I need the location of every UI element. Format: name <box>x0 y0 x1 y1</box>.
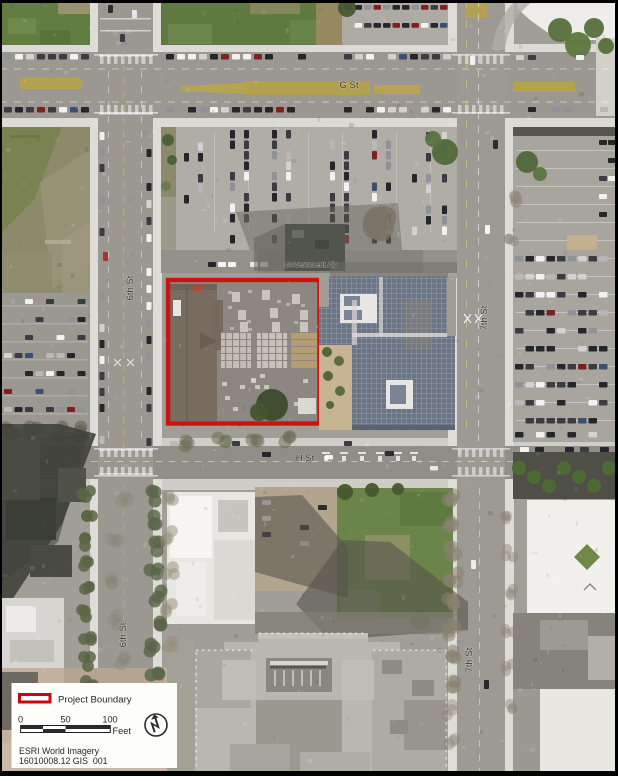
svg-text:ESRI World Imagery: ESRI World Imagery <box>19 746 100 756</box>
svg-text:H St: H St <box>296 453 315 464</box>
svg-text:0: 0 <box>18 715 23 725</box>
svg-text:7th St: 7th St <box>479 305 490 330</box>
svg-text:16010008.12 GIS 001: 16010008.12 GIS 001 <box>19 756 108 766</box>
svg-text:Feet: Feet <box>113 726 132 736</box>
svg-text:Project Boundary: Project Boundary <box>58 695 132 706</box>
svg-text:50: 50 <box>60 715 70 725</box>
svg-text:Government Aly: Government Aly <box>284 260 338 269</box>
svg-text:100: 100 <box>102 715 117 725</box>
svg-text:G St: G St <box>339 80 358 91</box>
svg-text:7th St: 7th St <box>464 647 475 672</box>
svg-text:6th St: 6th St <box>125 275 136 300</box>
